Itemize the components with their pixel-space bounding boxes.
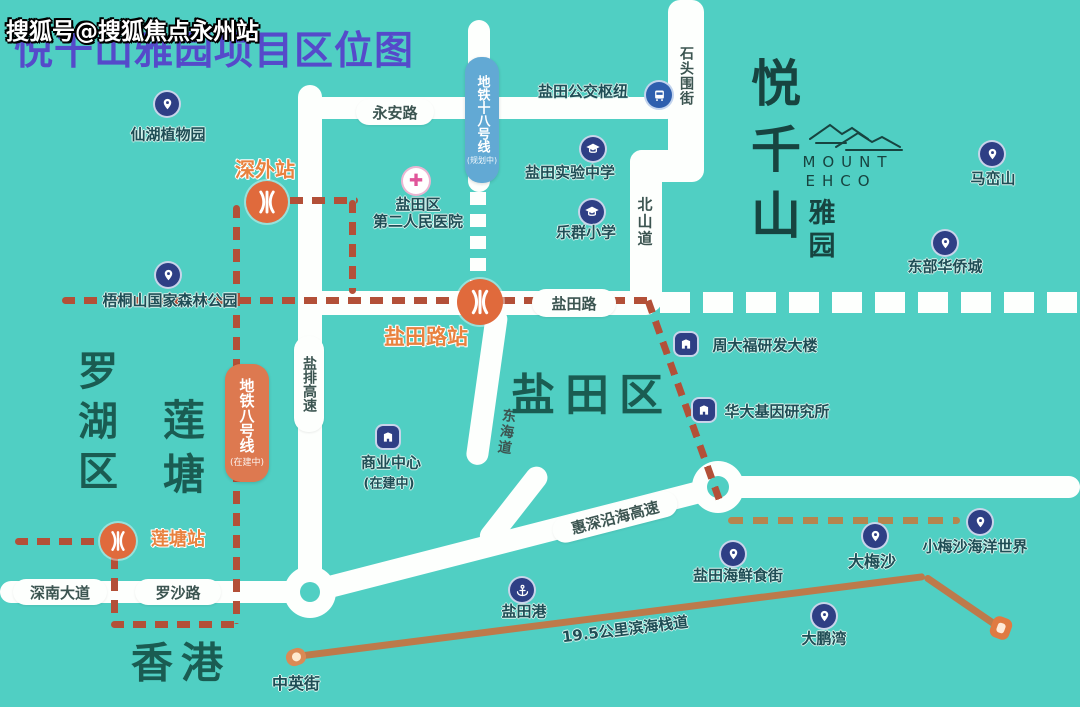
metro8-dash-liantang-west [15, 538, 100, 545]
poi-label-dapengwan: 大鹏湾 [801, 628, 846, 649]
building-icon [377, 426, 399, 448]
road-label-text: 深南大道 [30, 582, 90, 603]
district-hongkong: 香港 [131, 630, 231, 691]
district-liantang: 莲塘 [151, 398, 212, 506]
poi-label-hospital-line2: 第二人民医院 [373, 211, 463, 232]
metro-icon [457, 279, 503, 325]
road-label-text: 盐田路 [551, 293, 596, 314]
poi-label-shiyan: 盐田实验中学 [525, 162, 615, 183]
hospital-icon: ✚ [403, 168, 429, 194]
pin-icon [156, 263, 180, 287]
metro-line8-name: 地铁八号线 [237, 378, 258, 453]
district-yantian: 盐田区 [511, 359, 673, 423]
metro8-phase3-dash [728, 517, 960, 524]
pin-icon [721, 542, 745, 566]
road-label-text: 盐排高速 [299, 356, 319, 412]
logo-english-1: MOUNT [802, 153, 893, 171]
bus-icon [646, 82, 672, 108]
watermark: 搜狐号@搜狐焦点永州站 [6, 12, 259, 46]
metro8-dash-east-vertical [349, 200, 356, 294]
road-label-luosha: 罗沙路 [135, 579, 221, 605]
poi-label-seafood: 盐田海鲜食街 [693, 565, 783, 586]
school-icon [581, 137, 605, 161]
pin-icon [812, 604, 836, 628]
metro-line18-name: 地铁十八号线 [473, 75, 492, 153]
pin-icon [863, 524, 887, 548]
location-map: 19.5公里滨海栈道 永安路 盐田路 北山道 石头围街 盐排高速 东海道 惠深沿… [0, 0, 1080, 707]
pin-icon [980, 142, 1004, 166]
metro-line18-status: (规划中) [467, 155, 497, 166]
road-label-shitouwei: 石头围街 [676, 46, 696, 106]
mountain-icon [806, 117, 918, 153]
building-icon [675, 333, 697, 355]
school-icon [580, 200, 604, 224]
border-dash-bottom [111, 621, 239, 628]
anchor-icon [510, 578, 534, 602]
poi-label-huada: 华大基因研究所 [724, 401, 829, 422]
poi-label-maluanshan: 马峦山 [970, 168, 1015, 189]
road-east-extension [716, 476, 1080, 498]
metro-line8-status: (在建中) [230, 455, 264, 468]
pin-icon [968, 510, 992, 534]
metro-line8-label: 地铁八号线 (在建中) [225, 364, 269, 482]
metro-line18-label: 地铁十八号线 (规划中) [465, 57, 499, 183]
poi-label-lequn: 乐群小学 [556, 222, 616, 243]
poi-label-wutongshan: 梧桐山国家森林公园 [102, 290, 237, 311]
pin-icon [933, 231, 957, 255]
metro-icon [100, 523, 136, 559]
poi-label-yantian-port: 盐田港 [501, 601, 546, 622]
poi-label-dameisha: 大梅沙 [848, 548, 896, 572]
border-dash-left [111, 556, 118, 622]
poi-label-bus-hub: 盐田公交枢纽 [538, 81, 628, 102]
pin-icon [155, 92, 179, 116]
road-label-beishan: 北山道 [635, 197, 656, 248]
road-label-text: 永安路 [372, 102, 417, 123]
station-label-shenwai: 深外站 [235, 154, 295, 183]
poi-label-xianhu: 仙湖植物园 [130, 124, 205, 145]
poi-label-zhoudafu: 周大福研发大楼 [712, 335, 817, 356]
road-label-huishen: 惠深沿海高速 [550, 488, 680, 545]
building-icon [693, 399, 715, 421]
road-label-shennan: 深南大道 [13, 579, 107, 605]
poi-label-dongbu: 东部华侨城 [907, 256, 982, 277]
road-label-text: 罗沙路 [155, 582, 200, 603]
road-under-construction-dashes [660, 292, 1080, 313]
poi-label-zhongying: 中英街 [272, 670, 320, 694]
logo-english-2: EHCO [805, 172, 876, 190]
station-label-yantianlu: 盐田路站 [384, 321, 468, 351]
district-luohu: 罗湖区 [65, 350, 123, 500]
road-label-yongan: 永安路 [356, 99, 434, 125]
metro18-dashed-segment [470, 192, 486, 292]
road-label-yantian: 盐田路 [532, 289, 616, 317]
roundabout-west [284, 566, 336, 618]
poi-label-shangye-status: (在建中) [364, 473, 415, 492]
poi-label-xiaomeisha: 小梅沙海洋世界 [922, 536, 1027, 557]
metro-icon [246, 181, 288, 223]
station-label-liantang: 莲塘站 [151, 525, 205, 551]
zhongying-street-marker [284, 646, 309, 669]
road-label-yanpai: 盐排高速 [294, 336, 324, 432]
poi-label-shangye: 商业中心 [361, 452, 421, 473]
logo-name: 悦千山 [736, 57, 808, 255]
logo-subtitle: 雅园 [800, 198, 839, 264]
